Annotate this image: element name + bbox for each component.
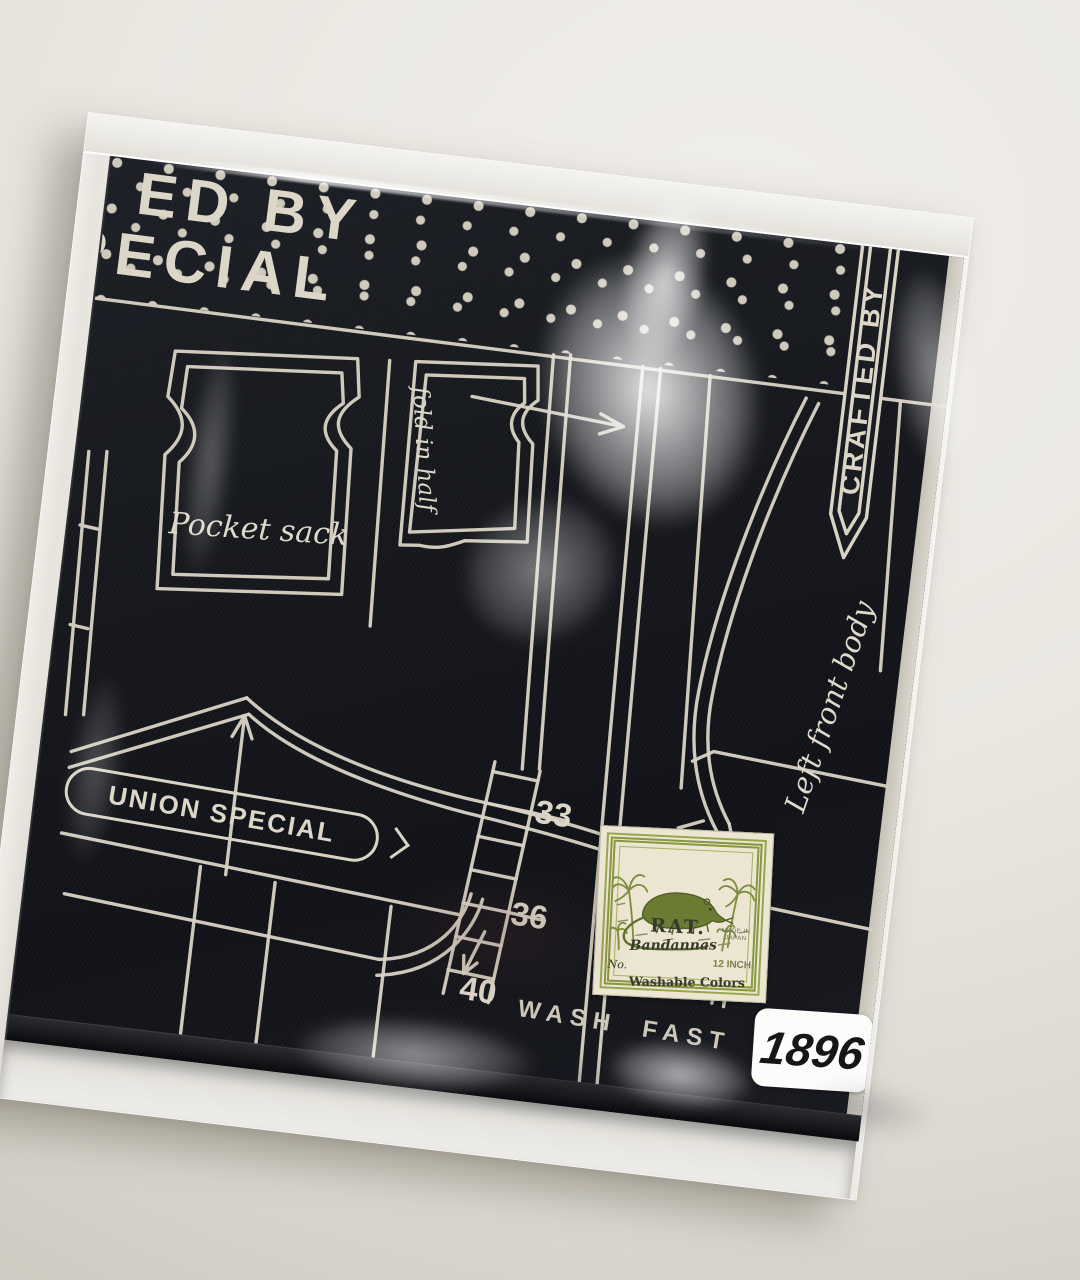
size-mark-33: 33 bbox=[532, 792, 574, 835]
size-mark-36: 36 bbox=[508, 894, 550, 937]
product-photo: ED BY PECIAL bbox=[0, 0, 1080, 1280]
size-mark-40: 40 bbox=[457, 969, 499, 1012]
rat-bandannas-label: RAT. Bandannas No. MADE IN JAPAN 12 INCH… bbox=[592, 825, 774, 1003]
plastic-sleeve-package: ED BY PECIAL bbox=[0, 112, 974, 1201]
label-subtitle: Bandannas bbox=[630, 938, 717, 954]
label-made-in: MADE IN JAPAN bbox=[721, 928, 750, 943]
label-size-text: 12 INCH. bbox=[712, 959, 754, 972]
bandana-fabric: ED BY PECIAL bbox=[5, 156, 964, 1142]
label-no-field: No. bbox=[607, 957, 627, 971]
label-washable-text: Washable Colors bbox=[629, 974, 745, 991]
price-sticker-number: 1896 bbox=[756, 1020, 867, 1080]
label-made-in-line2: JAPAN bbox=[721, 935, 750, 943]
price-sticker: 1896 bbox=[751, 1007, 874, 1093]
label-title: RAT. bbox=[650, 915, 707, 940]
